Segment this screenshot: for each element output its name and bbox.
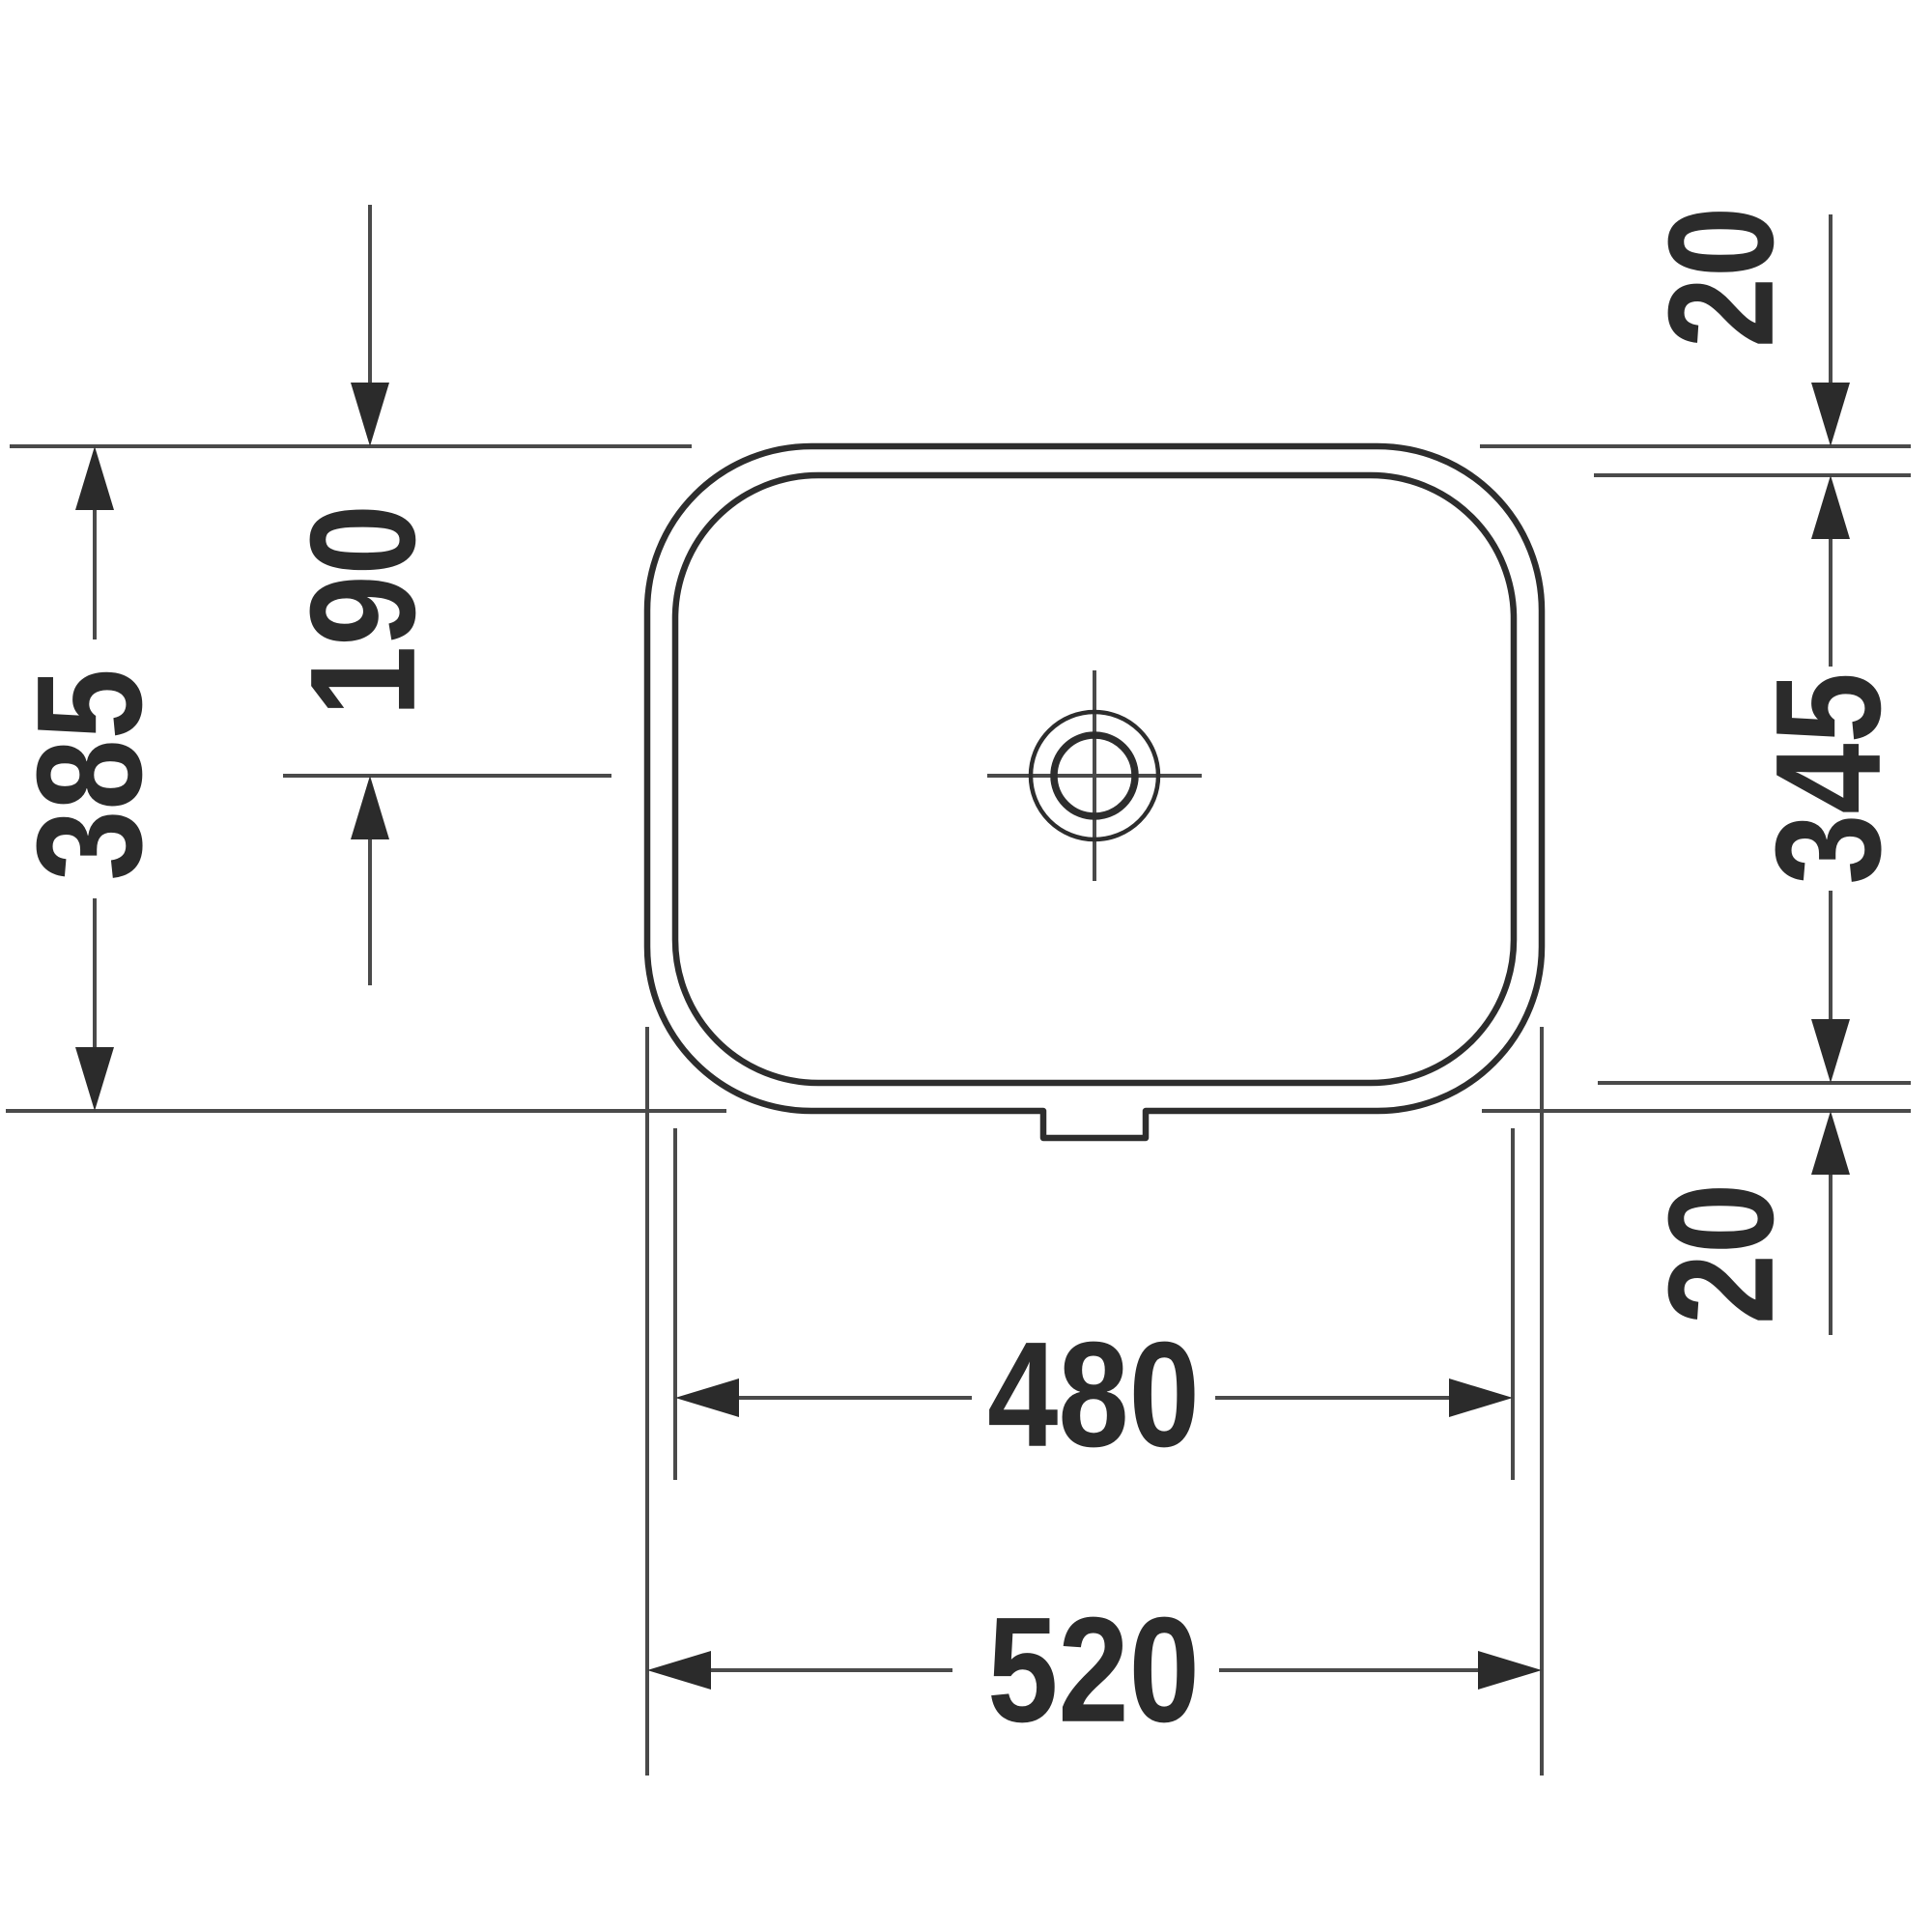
dim-overall-depth: 385 bbox=[7, 446, 173, 1111]
arrow-up-icon bbox=[351, 776, 389, 839]
arrow-up-icon bbox=[1811, 475, 1850, 539]
arrow-up-icon bbox=[75, 446, 114, 510]
arrow-left-icon bbox=[647, 1651, 711, 1690]
dim-190-label: 190 bbox=[280, 504, 446, 717]
dim-345-label: 345 bbox=[1746, 672, 1912, 885]
arrow-right-icon bbox=[1449, 1378, 1513, 1417]
dim-drain-center: 190 bbox=[280, 205, 446, 985]
dim-overall-width: 520 bbox=[647, 1587, 1542, 1753]
dim-480-label: 480 bbox=[987, 1312, 1200, 1478]
drain bbox=[987, 670, 1202, 881]
dim-385-label: 385 bbox=[7, 668, 173, 881]
arrow-right-icon bbox=[1478, 1651, 1542, 1690]
dim-20-bottom-label: 20 bbox=[1638, 1183, 1804, 1325]
arrow-up-icon bbox=[1811, 1111, 1850, 1175]
dim-20-top-label: 20 bbox=[1638, 207, 1804, 349]
dim-520-label: 520 bbox=[987, 1587, 1200, 1753]
washbasin-dimension-drawing: 385 190 20 345 20 bbox=[0, 0, 1932, 1932]
arrow-down-icon bbox=[351, 383, 389, 446]
dim-chain-right: 20 345 20 bbox=[1638, 207, 1912, 1335]
arrow-down-icon bbox=[1811, 383, 1850, 446]
arrow-down-icon bbox=[1811, 1019, 1850, 1083]
arrow-down-icon bbox=[75, 1047, 114, 1111]
arrow-left-icon bbox=[675, 1378, 739, 1417]
dim-basin-width: 480 bbox=[675, 1312, 1513, 1478]
drawing-sheet: 385 190 20 345 20 bbox=[0, 0, 1932, 1932]
